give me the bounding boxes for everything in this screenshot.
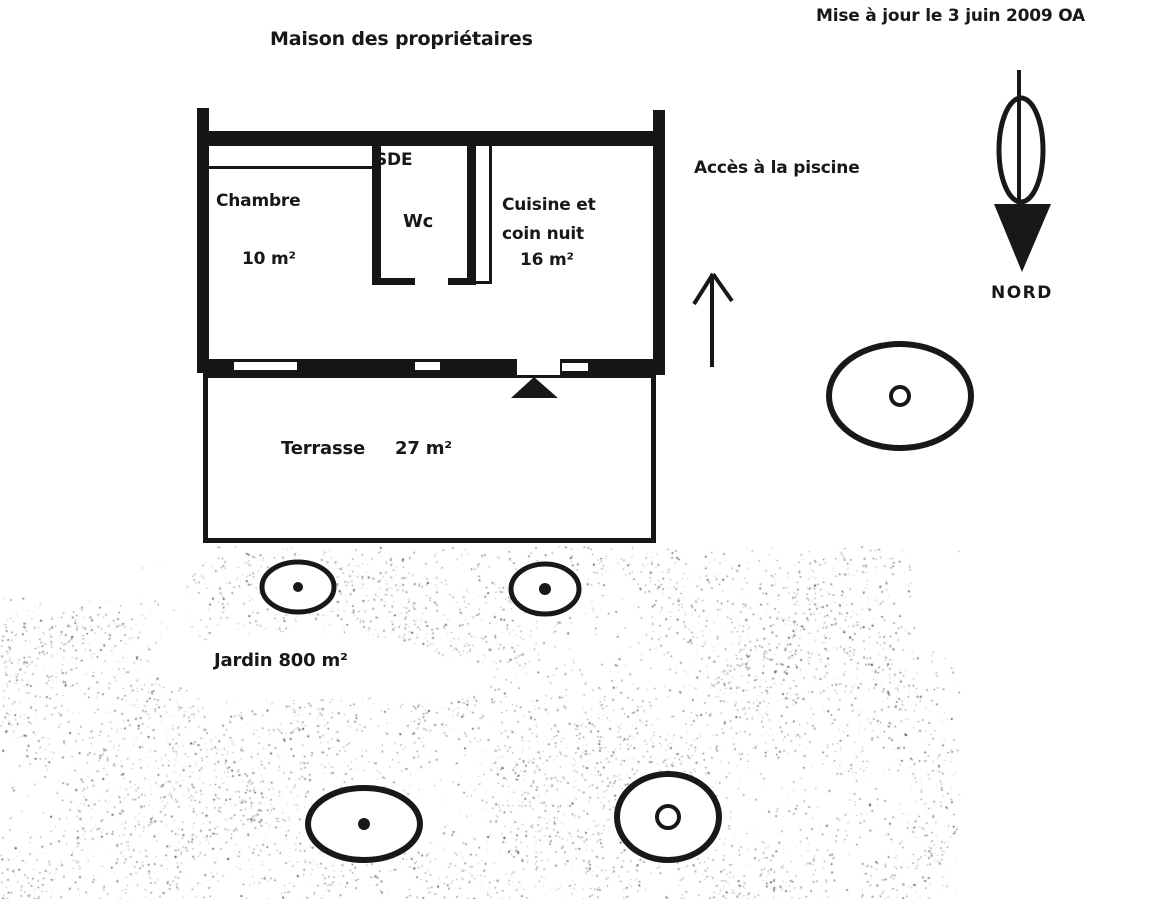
floor-plan-page: Maison des propriétaires Mise à jour le … xyxy=(0,0,1152,899)
room-area-cuisine: 16 m² xyxy=(520,250,574,270)
room-label-cuisine-2: coin nuit xyxy=(502,224,584,244)
kitchen-partition-foot xyxy=(468,281,492,284)
room-label-terrasse: Terrasse xyxy=(281,438,365,459)
tree-trunk-dot xyxy=(293,582,303,592)
wall-top xyxy=(197,131,664,146)
page-title: Maison des propriétaires xyxy=(270,28,533,50)
tree-trunk-dot xyxy=(539,583,551,595)
window-opening-2 xyxy=(415,362,440,370)
room-label-cuisine-1: Cuisine et xyxy=(502,195,596,215)
wc-wall-foot-left xyxy=(372,278,415,285)
window-opening-3 xyxy=(562,363,588,371)
door-opening xyxy=(517,357,560,375)
window-opening-1 xyxy=(234,362,297,370)
chambre-divider-line xyxy=(209,166,372,169)
wc-wall-right xyxy=(467,146,476,285)
kitchen-partition xyxy=(489,146,492,283)
tree-trunk-dot xyxy=(358,818,370,830)
north-compass-arrowhead xyxy=(994,204,1051,272)
pool-access-label: Accès à la piscine xyxy=(694,158,860,178)
room-label-chambre: Chambre xyxy=(216,191,300,211)
room-area-chambre: 10 m² xyxy=(242,249,296,269)
wall-right xyxy=(653,110,665,375)
update-note: Mise à jour le 3 juin 2009 OA xyxy=(816,6,1085,26)
room-label-wc: Wc xyxy=(403,211,433,232)
access-arrow-wing xyxy=(713,274,732,301)
north-label: NORD xyxy=(991,283,1053,303)
tree-icon xyxy=(617,774,719,860)
tree-icon xyxy=(829,344,971,448)
garden-label: Jardin 800 m² xyxy=(214,650,348,671)
room-label-sde: SDE xyxy=(375,150,412,170)
wall-left xyxy=(197,108,209,373)
room-area-terrasse: 27 m² xyxy=(395,438,452,459)
